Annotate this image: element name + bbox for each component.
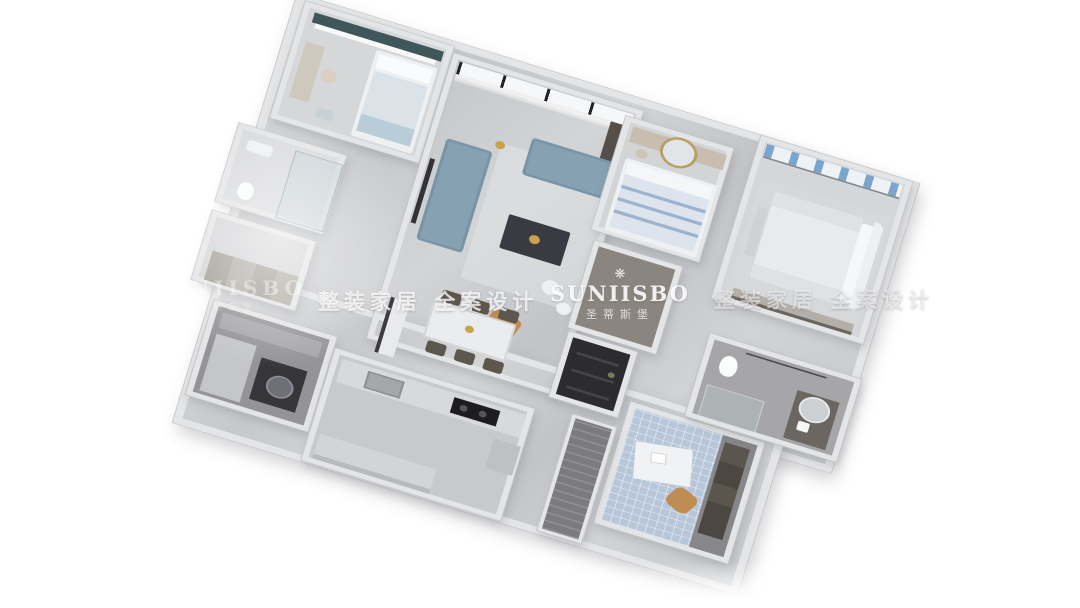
- sheer-curtain: [454, 74, 630, 134]
- burner: [478, 410, 488, 418]
- desk-chair: [663, 485, 700, 516]
- vanity-stool: [635, 148, 649, 161]
- gold-decor: [528, 234, 541, 246]
- toilet: [717, 354, 740, 379]
- study-desk: [633, 441, 693, 487]
- desk: [289, 41, 325, 102]
- bed: [350, 50, 437, 154]
- fridge: [485, 439, 521, 476]
- shelf-line: [576, 352, 619, 367]
- ottoman: [314, 107, 334, 122]
- washer-door: [263, 372, 296, 402]
- shelf-line: [566, 385, 609, 400]
- kitchen-island: [312, 434, 436, 494]
- toilet: [235, 180, 255, 202]
- desk-chair: [319, 68, 338, 85]
- bottom-fade: [0, 562, 1080, 608]
- floorplan-render: SUNIISBO 圣蒂斯堡 整装家居 全案设计 ❋ SUNIISBO 圣蒂斯堡 …: [0, 0, 1080, 608]
- apartment-plan: [149, 0, 930, 608]
- counter: [199, 334, 256, 403]
- washing-machine: [249, 357, 308, 412]
- laptop: [650, 452, 667, 465]
- kitchen-sink: [363, 371, 404, 399]
- sink: [246, 139, 274, 157]
- table-decor: [464, 325, 475, 335]
- burner: [459, 404, 469, 412]
- cooktop: [450, 397, 501, 426]
- plant: [607, 372, 615, 379]
